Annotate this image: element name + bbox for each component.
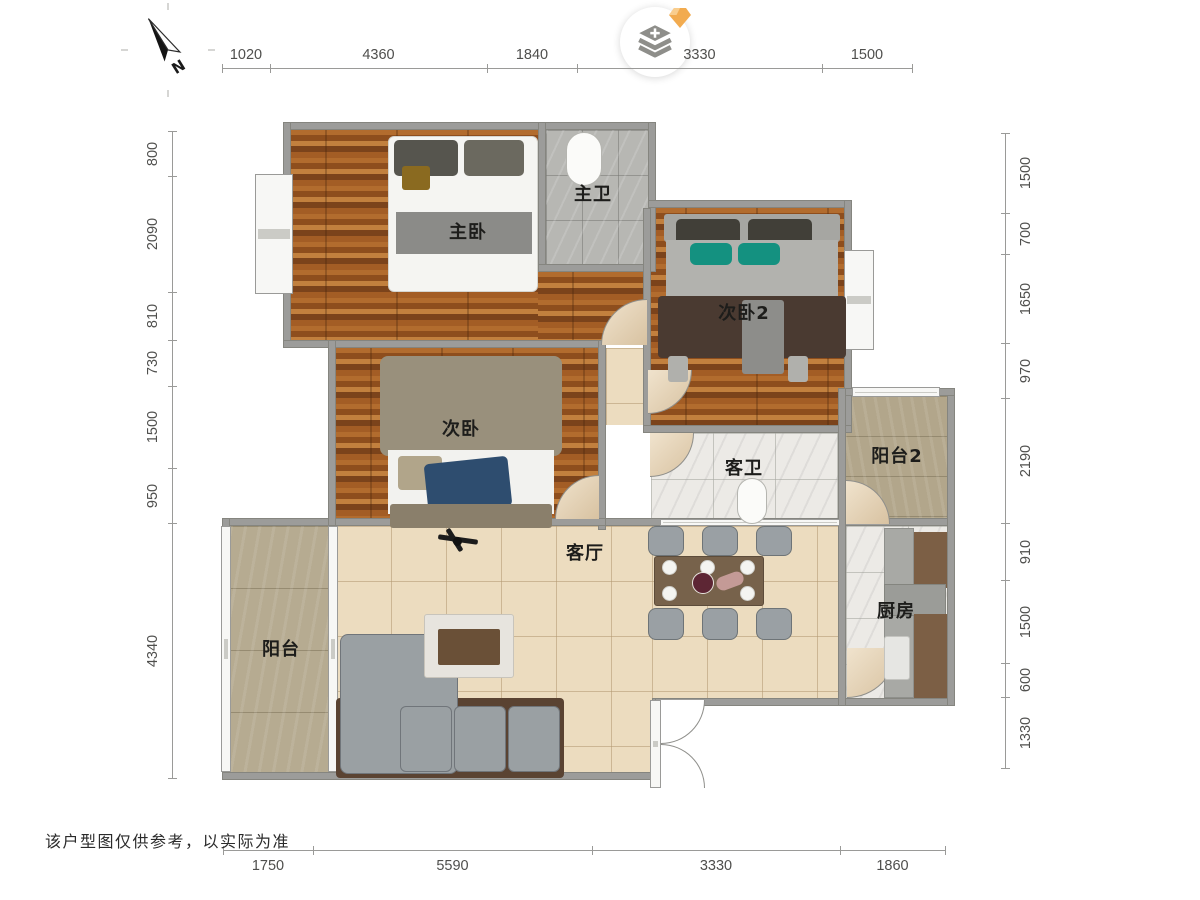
left-dimension-tick [168, 523, 177, 524]
right-dimension-label: 910 [1018, 539, 1034, 563]
top-dimension-label: 1840 [516, 47, 548, 63]
right-dimension-label: 1500 [1018, 605, 1034, 637]
disclaimer-text: 该户型图仅供参考，以实际为准 [45, 828, 290, 852]
bottom-dimension-line [223, 850, 945, 851]
left-dimension-label: 1500 [145, 411, 161, 443]
top-dimension-tick [270, 64, 271, 73]
bottom-dimension-label: 5590 [436, 858, 468, 874]
right-dimension-label: 1650 [1018, 282, 1034, 314]
bottom-dimension-label: 3330 [700, 858, 732, 874]
bottom-dimension-tick [840, 846, 841, 855]
right-dimension-tick [1001, 768, 1010, 769]
left-dimension-label: 810 [145, 304, 161, 328]
right-dimension-label: 2190 [1018, 444, 1034, 476]
right-dimension-tick [1001, 663, 1010, 664]
right-dimension-tick [1001, 343, 1010, 344]
left-dimension-label: 800 [145, 141, 161, 165]
top-dimension-label: 1500 [851, 47, 883, 63]
right-dimension-label: 1330 [1018, 716, 1034, 748]
bottom-dimension-label: 1860 [876, 858, 908, 874]
left-dimension-tick [168, 131, 177, 132]
right-dimension-tick [1001, 697, 1010, 698]
bottom-dimension-tick [313, 846, 314, 855]
right-dimension-tick [1001, 398, 1010, 399]
left-dimension-tick [168, 176, 177, 177]
right-dimension-tick [1001, 254, 1010, 255]
right-dimension-tick [1001, 523, 1010, 524]
left-dimension-tick [168, 340, 177, 341]
top-dimension-tick [912, 64, 913, 73]
left-dimension-tick [168, 292, 177, 293]
left-dimension-tick [168, 778, 177, 779]
bottom-dimension-label: 1750 [252, 858, 284, 874]
floorplan-page: N 主卧主卫次卧2次卧客卫阳台2客厅阳台厨房 10204360184033301… [0, 0, 1200, 900]
left-dimension-label: 2090 [145, 218, 161, 250]
bottom-dimension-tick [592, 846, 593, 855]
top-dimension-tick [222, 64, 223, 73]
bottom-dimension-tick [945, 846, 946, 855]
right-dimension-tick [1001, 213, 1010, 214]
left-dimension-label: 950 [145, 483, 161, 507]
top-dimension-line [222, 68, 912, 69]
right-dimension-label: 600 [1018, 668, 1034, 692]
top-dimension-tick [487, 64, 488, 73]
left-dimension-tick [168, 386, 177, 387]
right-dimension-tick [1001, 133, 1010, 134]
right-dimension-line [1005, 133, 1006, 768]
top-dimension-label: 1020 [230, 47, 262, 63]
left-dimension-label: 4340 [145, 634, 161, 666]
right-dimension-label: 1500 [1018, 157, 1034, 189]
top-dimension-tick [822, 64, 823, 73]
top-dimension-tick [577, 64, 578, 73]
top-dimension-label: 3330 [683, 47, 715, 63]
left-dimension-tick [168, 468, 177, 469]
right-dimension-label: 970 [1018, 358, 1034, 382]
right-dimension-label: 700 [1018, 221, 1034, 245]
right-dimension-tick [1001, 580, 1010, 581]
top-dimension-label: 4360 [362, 47, 394, 63]
dimension-annotations: 1020436018403330150017505590333018608002… [0, 0, 1200, 900]
left-dimension-label: 730 [145, 351, 161, 375]
left-dimension-line [172, 131, 173, 778]
